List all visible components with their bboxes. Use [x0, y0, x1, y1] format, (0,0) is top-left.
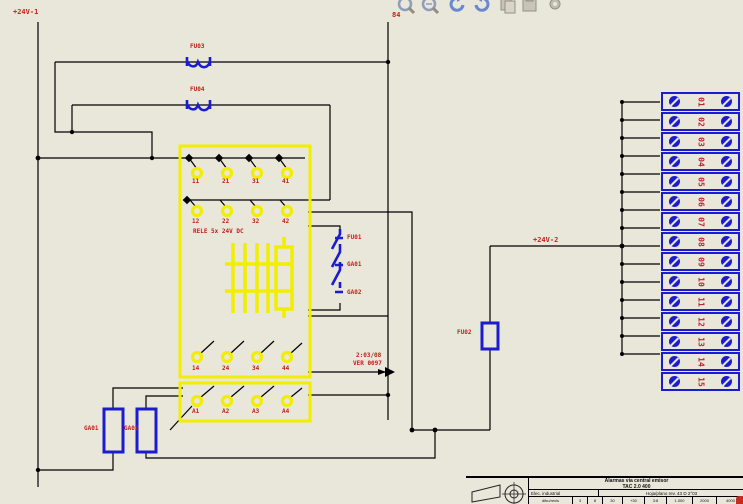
label-resistor-ga02: GA02	[124, 426, 138, 432]
terminal-row[interactable]: 09	[661, 252, 740, 271]
title-block-sheet-ref: Hoja/plano rev. 43 D 2°03	[599, 490, 743, 496]
terminal-strip[interactable]: 01 02 03 04 05 06 07 08 09 10 11 12 13 1…	[661, 92, 740, 392]
scale-cell: 3:8	[645, 497, 667, 504]
screw-icon	[721, 316, 732, 327]
terminal-row[interactable]: 11	[661, 292, 740, 311]
label-resistor-ga01: GA01	[84, 426, 98, 432]
screw-icon	[721, 256, 732, 267]
label-fuse-rail1: FU03	[190, 44, 204, 50]
screw-icon	[669, 196, 680, 207]
terminal-number: 03	[696, 137, 705, 147]
terminal-number: 10	[696, 277, 705, 287]
net-label-top-ref: 84	[392, 12, 400, 18]
scale-cell: 3	[573, 497, 588, 504]
screw-icon	[669, 376, 680, 387]
projection-symbol-icon	[466, 478, 526, 504]
screw-icon	[721, 176, 732, 187]
screw-icon	[721, 336, 732, 347]
screw-icon	[721, 216, 732, 227]
pin-label: A1	[192, 409, 199, 415]
label-chain-ga01: GA01	[347, 262, 361, 268]
label-fuse-rail2: FU04	[190, 87, 204, 93]
scale-cell: 2000	[693, 497, 717, 504]
terminal-row[interactable]: 13	[661, 332, 740, 351]
schematic-canvas[interactable]	[0, 0, 743, 504]
xref-arrow-icon	[378, 367, 395, 377]
pin-label: 42	[282, 219, 289, 225]
terminal-row[interactable]: 10	[661, 272, 740, 291]
terminal-number: 14	[696, 357, 705, 367]
terminal-row[interactable]: 06	[661, 192, 740, 211]
terminal-row[interactable]: 03	[661, 132, 740, 151]
label-xref-line1: 2:03/08	[356, 353, 381, 359]
net-label-24v-1: +24V-1	[13, 9, 38, 15]
pin-label: 34	[252, 366, 259, 372]
terminal-row[interactable]: 12	[661, 312, 740, 331]
screw-icon	[669, 256, 680, 267]
cad-application-window: +24V-1 84 FU03 FU04 RELE 5x 24V DC FU01 …	[0, 0, 743, 504]
screw-icon	[669, 96, 680, 107]
fuse-fu02-symbol[interactable]	[482, 323, 498, 349]
title-block-author: Elec. industrial	[529, 490, 599, 496]
screw-icon	[669, 116, 680, 127]
pin-label: 11	[192, 179, 199, 185]
screw-icon	[721, 276, 732, 287]
terminal-row[interactable]: 02	[661, 112, 740, 131]
terminal-row[interactable]: 04	[661, 152, 740, 171]
terminal-row[interactable]: 07	[661, 212, 740, 231]
approval-stamp	[736, 496, 743, 504]
pin-label: 22	[222, 219, 229, 225]
scale-cell: 1.000	[667, 497, 693, 504]
label-fuse-fu02: FU02	[457, 330, 471, 336]
resistor-ga01-symbol[interactable]	[104, 409, 123, 452]
scale-cell: +30	[623, 497, 645, 504]
wires	[38, 22, 660, 487]
screw-icon	[669, 356, 680, 367]
terminal-number: 11	[696, 297, 705, 307]
label-chain-ga02: GA02	[347, 290, 361, 296]
screw-icon	[669, 176, 680, 187]
label-xref-line2: VER 0097	[353, 361, 382, 367]
terminal-number: 06	[696, 197, 705, 207]
terminal-number: 01	[696, 97, 705, 107]
screw-icon	[669, 236, 680, 247]
screw-icon	[721, 96, 732, 107]
pin-label: 31	[252, 179, 259, 185]
pin-label: 21	[222, 179, 229, 185]
screw-icon	[721, 376, 732, 387]
scale-cell: 30	[603, 497, 623, 504]
scale-cell: dibu/revis	[529, 497, 573, 504]
terminal-number: 12	[696, 317, 705, 327]
screw-icon	[721, 296, 732, 307]
screw-icon	[721, 116, 732, 127]
net-label-24v-2: +24V-2	[533, 237, 558, 243]
pin-label: A3	[252, 409, 259, 415]
terminal-number: 08	[696, 237, 705, 247]
screw-icon	[721, 356, 732, 367]
screw-icon	[669, 296, 680, 307]
resistor-ga02-symbol[interactable]	[137, 409, 156, 452]
pin-label: 32	[252, 219, 259, 225]
screw-icon	[669, 316, 680, 327]
pin-label: 44	[282, 366, 289, 372]
terminal-number: 05	[696, 177, 705, 187]
scale-cell: 8	[588, 497, 603, 504]
title-block: Alarmas via central emisor TAC 2.0 400 E…	[466, 476, 743, 504]
switch-chain[interactable]	[332, 229, 343, 292]
pin-label: 14	[192, 366, 199, 372]
terminal-row[interactable]: 01	[661, 92, 740, 111]
pin-label: A4	[282, 409, 289, 415]
pin-label: 41	[282, 179, 289, 185]
terminal-number: 09	[696, 257, 705, 267]
terminal-number: 13	[696, 337, 705, 347]
screw-icon	[669, 336, 680, 347]
label-chain-fu01: FU01	[347, 235, 361, 241]
screw-icon	[721, 136, 732, 147]
title-block-table: Alarmas via central emisor TAC 2.0 400 E…	[528, 478, 743, 504]
relay-coils[interactable]	[225, 237, 293, 318]
pin-label: A2	[222, 409, 229, 415]
terminal-row[interactable]: 14	[661, 352, 740, 371]
screw-icon	[721, 156, 732, 167]
screw-icon	[669, 216, 680, 227]
terminal-row[interactable]: 05	[661, 172, 740, 191]
terminal-row[interactable]: 08	[661, 232, 740, 251]
terminal-number: 07	[696, 217, 705, 227]
terminal-row[interactable]: 15	[661, 372, 740, 391]
screw-icon	[669, 156, 680, 167]
screw-icon	[721, 236, 732, 247]
label-relay-title: RELE 5x 24V DC	[193, 229, 244, 235]
screw-icon	[721, 196, 732, 207]
pin-label: 24	[222, 366, 229, 372]
terminal-number: 02	[696, 117, 705, 127]
screw-icon	[669, 276, 680, 287]
pin-label: 12	[192, 219, 199, 225]
terminal-number: 04	[696, 157, 705, 167]
screw-icon	[669, 136, 680, 147]
terminal-number: 15	[696, 377, 705, 387]
